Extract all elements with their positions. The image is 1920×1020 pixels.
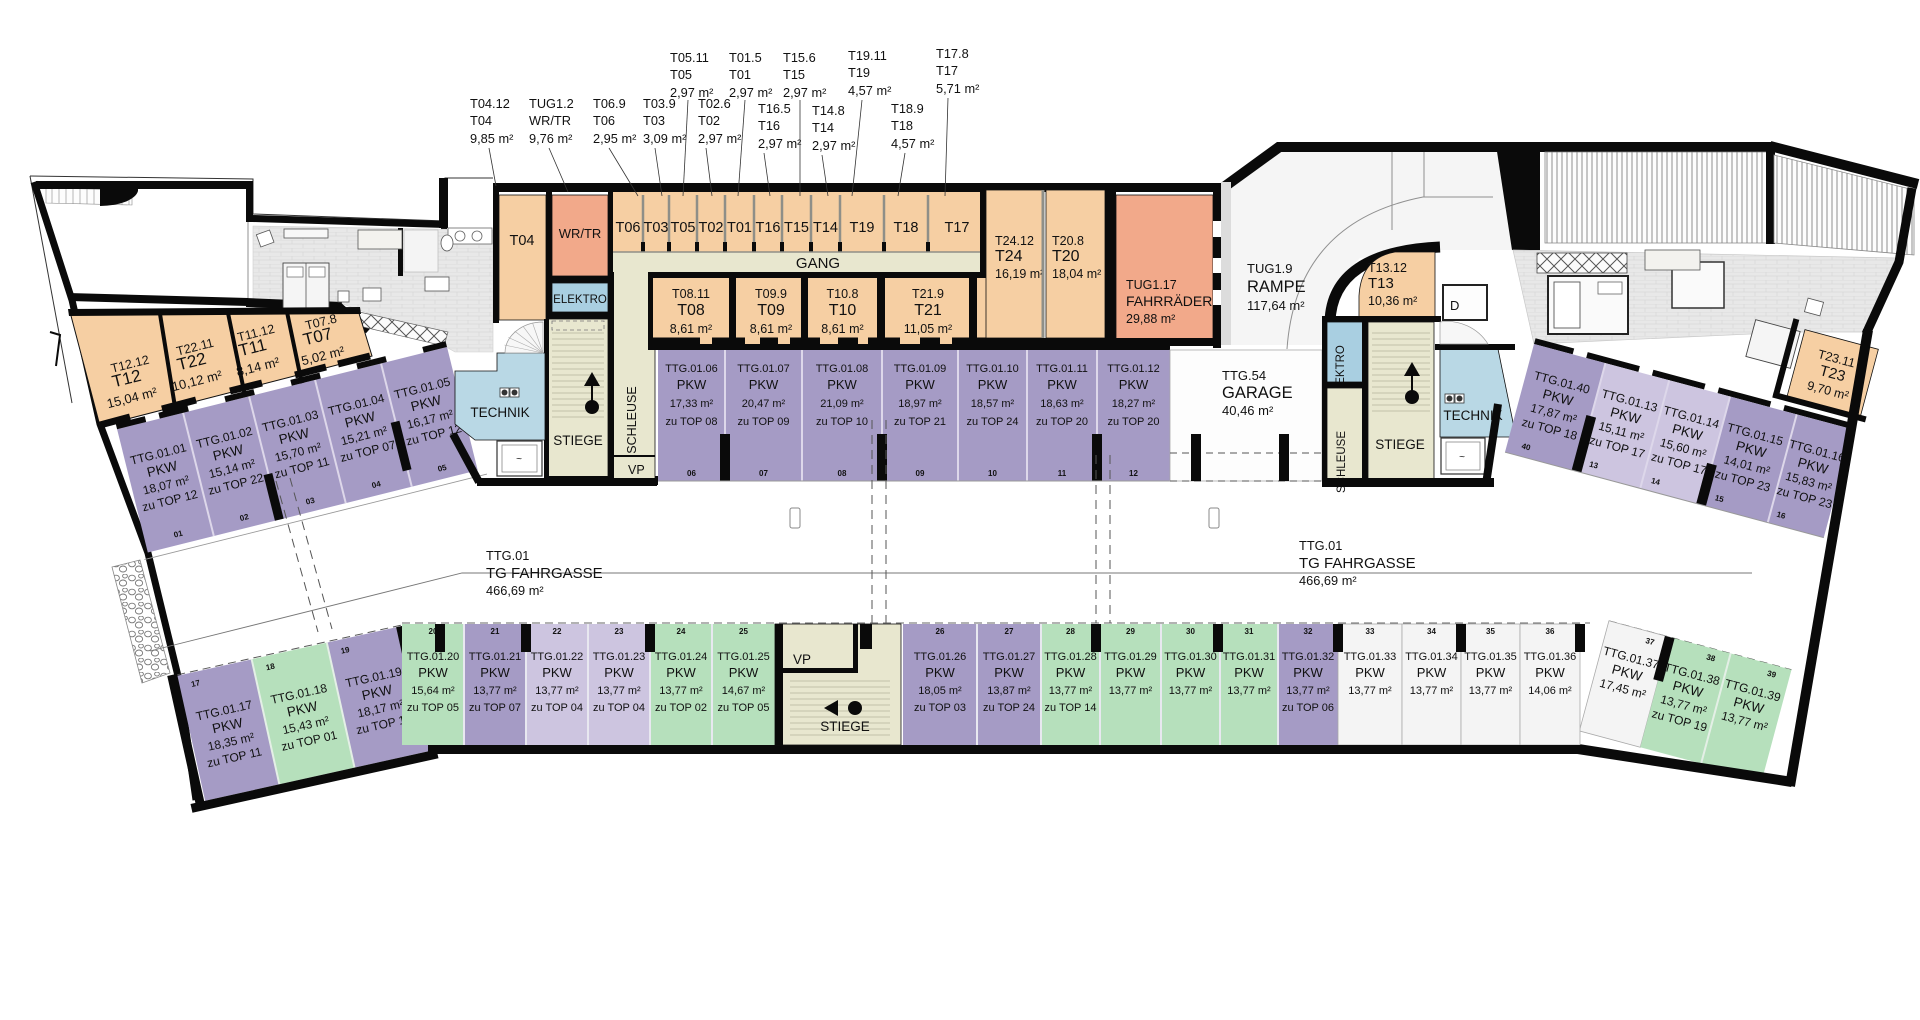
svg-text:TTG.01.25: TTG.01.25: [717, 651, 770, 663]
svg-text:2,97 m²: 2,97 m²: [783, 85, 827, 100]
svg-text:PKW: PKW: [905, 377, 935, 392]
svg-text:~: ~: [1459, 452, 1465, 463]
svg-text:24: 24: [677, 627, 686, 636]
svg-text:18,97 m²: 18,97 m²: [898, 398, 942, 410]
svg-text:TTG.01.28: TTG.01.28: [1044, 651, 1097, 663]
svg-text:PKW: PKW: [827, 377, 857, 392]
svg-text:T24: T24: [995, 248, 1023, 265]
svg-text:T03: T03: [643, 113, 665, 128]
svg-text:zu TOP 20: zu TOP 20: [1108, 416, 1160, 428]
svg-text:STIEGE: STIEGE: [553, 433, 603, 448]
svg-text:~: ~: [516, 454, 522, 465]
svg-text:TTG.01.21: TTG.01.21: [469, 651, 522, 663]
svg-text:25: 25: [739, 627, 748, 636]
svg-text:10: 10: [988, 469, 997, 478]
svg-text:TTG.01.30: TTG.01.30: [1164, 651, 1217, 663]
svg-text:ELEKTRO: ELEKTRO: [553, 294, 607, 306]
svg-text:PKW: PKW: [1234, 665, 1264, 680]
svg-text:T13: T13: [1368, 275, 1394, 292]
svg-text:13,77 m²: 13,77 m²: [1227, 685, 1271, 697]
svg-text:TTG.01: TTG.01: [1299, 538, 1342, 553]
svg-text:PKW: PKW: [729, 665, 759, 680]
svg-text:27: 27: [1005, 627, 1014, 636]
svg-text:T01.5: T01.5: [729, 50, 762, 65]
svg-text:TTG.01.27: TTG.01.27: [983, 651, 1036, 663]
svg-text:T05.11: T05.11: [670, 50, 709, 65]
svg-text:17,33 m²: 17,33 m²: [670, 398, 714, 410]
svg-text:T09: T09: [757, 302, 785, 319]
svg-text:8,61 m²: 8,61 m²: [821, 322, 863, 336]
svg-text:29,88 m²: 29,88 m²: [1126, 312, 1175, 326]
svg-text:13,87 m²: 13,87 m²: [987, 685, 1031, 697]
svg-text:T08.11: T08.11: [672, 287, 710, 301]
svg-text:T04: T04: [510, 233, 535, 249]
svg-text:8,61 m²: 8,61 m²: [670, 322, 712, 336]
svg-text:T15.6: T15.6: [783, 50, 816, 65]
svg-text:4,57 m²: 4,57 m²: [848, 83, 892, 98]
svg-text:zu TOP 24: zu TOP 24: [983, 702, 1035, 714]
svg-text:zu TOP 04: zu TOP 04: [531, 702, 583, 714]
svg-text:12: 12: [1129, 469, 1138, 478]
svg-text:2,97 m²: 2,97 m²: [758, 136, 802, 151]
svg-text:T03: T03: [644, 220, 669, 236]
svg-text:14,06 m²: 14,06 m²: [1528, 685, 1572, 697]
svg-text:9,85 m²: 9,85 m²: [470, 131, 514, 146]
svg-text:29: 29: [1126, 627, 1135, 636]
svg-text:TTG.01.07: TTG.01.07: [737, 363, 790, 375]
svg-text:13,77 m²: 13,77 m²: [659, 685, 703, 697]
svg-text:T15: T15: [784, 220, 809, 236]
svg-text:T19: T19: [848, 65, 870, 80]
svg-text:T21.9: T21.9: [912, 287, 944, 301]
svg-text:2,95 m²: 2,95 m²: [593, 131, 637, 146]
svg-text:T06: T06: [616, 220, 641, 236]
svg-text:TTG.01.33: TTG.01.33: [1344, 651, 1397, 663]
svg-text:VP: VP: [793, 652, 811, 667]
svg-text:13,77 m²: 13,77 m²: [1348, 685, 1392, 697]
svg-text:10,36 m²: 10,36 m²: [1368, 294, 1417, 308]
svg-text:T06: T06: [593, 113, 615, 128]
svg-text:T19: T19: [850, 220, 875, 236]
svg-text:13,77 m²: 13,77 m²: [1410, 685, 1454, 697]
svg-text:3,09 m²: 3,09 m²: [643, 131, 687, 146]
svg-text:T08: T08: [677, 302, 705, 319]
svg-text:T17.8: T17.8: [936, 46, 969, 61]
svg-text:PKW: PKW: [1047, 377, 1077, 392]
svg-text:GANG: GANG: [796, 255, 840, 272]
svg-text:11: 11: [1058, 469, 1067, 478]
svg-text:T01: T01: [729, 67, 751, 82]
svg-text:4,57 m²: 4,57 m²: [891, 136, 935, 151]
svg-text:PKW: PKW: [1119, 377, 1149, 392]
svg-text:22: 22: [553, 627, 562, 636]
svg-text:07: 07: [759, 469, 768, 478]
svg-text:2,97 m²: 2,97 m²: [729, 85, 773, 100]
svg-text:TTG.01.22: TTG.01.22: [531, 651, 584, 663]
svg-text:28: 28: [1066, 627, 1075, 636]
svg-text:STIEGE: STIEGE: [1375, 437, 1425, 452]
svg-text:TTG.01.35: TTG.01.35: [1464, 651, 1517, 663]
svg-text:T10: T10: [829, 302, 857, 319]
svg-text:T04: T04: [470, 113, 492, 128]
svg-text:20,47 m²: 20,47 m²: [742, 398, 786, 410]
svg-text:TTG.01.29: TTG.01.29: [1104, 651, 1157, 663]
svg-text:TUG1.9: TUG1.9: [1247, 261, 1293, 276]
svg-text:PKW: PKW: [994, 665, 1024, 680]
svg-text:35: 35: [1486, 627, 1495, 636]
svg-text:zu TOP 24: zu TOP 24: [967, 416, 1019, 428]
svg-text:T06.9: T06.9: [593, 96, 626, 111]
svg-text:TTG.01.11: TTG.01.11: [1036, 363, 1088, 375]
svg-text:T20: T20: [1052, 248, 1080, 265]
svg-text:TTG.01: TTG.01: [486, 548, 529, 563]
svg-text:PKW: PKW: [749, 377, 779, 392]
svg-text:21,09 m²: 21,09 m²: [820, 398, 864, 410]
svg-text:TTG.01.12: TTG.01.12: [1107, 363, 1160, 375]
svg-text:33: 33: [1366, 627, 1375, 636]
svg-text:TTG.01.06: TTG.01.06: [665, 363, 718, 375]
svg-text:34: 34: [1427, 627, 1436, 636]
svg-text:18,57 m²: 18,57 m²: [971, 398, 1015, 410]
svg-text:PKW: PKW: [677, 377, 707, 392]
svg-text:WR/TR: WR/TR: [529, 113, 571, 128]
svg-text:PKW: PKW: [480, 665, 510, 680]
svg-text:TUG1.2: TUG1.2: [529, 96, 574, 111]
svg-text:T21: T21: [914, 302, 942, 319]
svg-text:13,77 m²: 13,77 m²: [473, 685, 517, 697]
svg-text:18,63 m²: 18,63 m²: [1040, 398, 1084, 410]
svg-text:T16: T16: [758, 118, 780, 133]
svg-text:zu TOP 07: zu TOP 07: [469, 702, 521, 714]
svg-text:SCHLEUSE: SCHLEUSE: [625, 386, 639, 453]
svg-text:PKW: PKW: [978, 377, 1008, 392]
svg-text:09: 09: [916, 469, 925, 478]
svg-text:PKW: PKW: [1417, 665, 1447, 680]
svg-text:PKW: PKW: [1476, 665, 1506, 680]
svg-text:zu TOP 21: zu TOP 21: [894, 416, 946, 428]
svg-text:16,19 m²: 16,19 m²: [995, 267, 1044, 281]
svg-text:TTG.54: TTG.54: [1222, 368, 1266, 383]
svg-text:T17: T17: [936, 63, 958, 78]
svg-text:GARAGE: GARAGE: [1222, 384, 1293, 402]
svg-text:14,67 m²: 14,67 m²: [722, 685, 766, 697]
svg-text:466,69 m²: 466,69 m²: [1299, 573, 1357, 588]
svg-text:TTG.01.26: TTG.01.26: [914, 651, 967, 663]
svg-text:13,77 m²: 13,77 m²: [1109, 685, 1153, 697]
svg-text:PKW: PKW: [1293, 665, 1323, 680]
svg-text:18,27 m²: 18,27 m²: [1112, 398, 1156, 410]
svg-text:PKW: PKW: [418, 665, 448, 680]
svg-text:PKW: PKW: [1056, 665, 1086, 680]
svg-text:2,97 m²: 2,97 m²: [812, 138, 856, 153]
svg-text:T14: T14: [813, 220, 838, 236]
svg-text:15,64 m²: 15,64 m²: [411, 685, 455, 697]
svg-text:26: 26: [936, 627, 945, 636]
svg-text:zu TOP 06: zu TOP 06: [1282, 702, 1334, 714]
svg-text:T05: T05: [671, 220, 696, 236]
svg-text:13,77 m²: 13,77 m²: [535, 685, 579, 697]
svg-text:TECHNIK: TECHNIK: [470, 405, 529, 420]
svg-text:TTG.01.31: TTG.01.31: [1223, 651, 1276, 663]
svg-text:VP: VP: [628, 463, 645, 477]
svg-text:TTG.01.23: TTG.01.23: [593, 651, 646, 663]
svg-text:PKW: PKW: [1355, 665, 1385, 680]
svg-text:T02.6: T02.6: [698, 96, 731, 111]
svg-text:13,77 m²: 13,77 m²: [1469, 685, 1513, 697]
svg-text:23: 23: [615, 627, 624, 636]
svg-text:2,97 m²: 2,97 m²: [698, 131, 742, 146]
svg-text:40,46 m²: 40,46 m²: [1222, 403, 1274, 418]
svg-text:T18.9: T18.9: [891, 101, 924, 116]
svg-text:D: D: [1450, 298, 1459, 313]
svg-text:31: 31: [1245, 627, 1254, 636]
svg-text:PKW: PKW: [1535, 665, 1565, 680]
svg-text:zu TOP 14: zu TOP 14: [1045, 702, 1097, 714]
svg-text:8,61 m²: 8,61 m²: [750, 322, 792, 336]
svg-text:117,64 m²: 117,64 m²: [1247, 298, 1305, 313]
svg-text:32: 32: [1304, 627, 1313, 636]
svg-text:zu TOP 02: zu TOP 02: [655, 702, 707, 714]
svg-text:13,77 m²: 13,77 m²: [1049, 685, 1093, 697]
svg-text:FAHRRÄDER: FAHRRÄDER: [1126, 293, 1212, 309]
svg-text:T09.9: T09.9: [755, 287, 787, 301]
svg-text:5,71 m²: 5,71 m²: [936, 81, 980, 96]
svg-text:T17: T17: [945, 220, 970, 236]
svg-text:06: 06: [687, 469, 696, 478]
svg-text:9,76 m²: 9,76 m²: [529, 131, 573, 146]
svg-text:18,04 m²: 18,04 m²: [1052, 267, 1101, 281]
svg-text:T24.12: T24.12: [995, 234, 1034, 248]
svg-text:13,77 m²: 13,77 m²: [1286, 685, 1330, 697]
svg-text:TTG.01.20: TTG.01.20: [407, 651, 460, 663]
svg-text:STIEGE: STIEGE: [820, 719, 870, 734]
svg-text:13,77 m²: 13,77 m²: [597, 685, 641, 697]
svg-text:21: 21: [491, 627, 500, 636]
svg-text:PKW: PKW: [542, 665, 572, 680]
svg-text:T15: T15: [783, 67, 805, 82]
svg-text:30: 30: [1186, 627, 1195, 636]
svg-text:RAMPE: RAMPE: [1247, 278, 1306, 296]
svg-text:T13.12: T13.12: [1368, 261, 1407, 275]
svg-text:zu TOP 08: zu TOP 08: [666, 416, 718, 428]
svg-text:TUG1.17: TUG1.17: [1126, 278, 1177, 292]
svg-text:zu TOP 05: zu TOP 05: [407, 702, 459, 714]
svg-text:08: 08: [838, 469, 847, 478]
svg-text:TTG.01.32: TTG.01.32: [1282, 651, 1335, 663]
svg-text:11,05 m²: 11,05 m²: [904, 322, 952, 336]
svg-text:PKW: PKW: [604, 665, 634, 680]
svg-text:zu TOP 10: zu TOP 10: [816, 416, 868, 428]
svg-text:zu TOP 09: zu TOP 09: [738, 416, 790, 428]
svg-text:13,77 m²: 13,77 m²: [1169, 685, 1213, 697]
svg-text:T01: T01: [727, 220, 752, 236]
svg-text:TTG.01.34: TTG.01.34: [1405, 651, 1458, 663]
svg-text:zu TOP 20: zu TOP 20: [1036, 416, 1088, 428]
svg-text:T20.8: T20.8: [1052, 234, 1084, 248]
svg-text:TTG.01.10: TTG.01.10: [966, 363, 1019, 375]
svg-text:TTG.01.24: TTG.01.24: [655, 651, 708, 663]
svg-text:T16: T16: [756, 220, 781, 236]
svg-text:T18: T18: [891, 118, 913, 133]
svg-text:T14.8: T14.8: [812, 103, 845, 118]
svg-text:36: 36: [1546, 627, 1555, 636]
svg-text:T10.8: T10.8: [827, 287, 859, 301]
svg-text:PKW: PKW: [666, 665, 696, 680]
svg-text:zu TOP 03: zu TOP 03: [914, 702, 966, 714]
svg-text:PKW: PKW: [1116, 665, 1146, 680]
svg-text:T04.12: T04.12: [470, 96, 510, 111]
svg-text:T19.11: T19.11: [848, 48, 887, 63]
svg-text:TG FAHRGASSE: TG FAHRGASSE: [486, 565, 603, 582]
svg-text:18,05 m²: 18,05 m²: [918, 685, 962, 697]
svg-text:TTG.01.36: TTG.01.36: [1524, 651, 1577, 663]
svg-text:466,69 m²: 466,69 m²: [486, 583, 544, 598]
svg-text:T05: T05: [670, 67, 692, 82]
svg-text:T14: T14: [812, 120, 834, 135]
svg-text:T02: T02: [698, 113, 720, 128]
svg-text:TTG.01.09: TTG.01.09: [894, 363, 947, 375]
svg-text:zu TOP 04: zu TOP 04: [593, 702, 645, 714]
svg-text:zu TOP 05: zu TOP 05: [718, 702, 770, 714]
svg-text:T16.5: T16.5: [758, 101, 791, 116]
svg-text:WR/TR: WR/TR: [559, 226, 602, 241]
svg-text:T02: T02: [699, 220, 724, 236]
svg-text:T18: T18: [894, 220, 919, 236]
svg-text:TTG.01.08: TTG.01.08: [816, 363, 869, 375]
svg-text:TG FAHRGASSE: TG FAHRGASSE: [1299, 555, 1416, 572]
svg-text:PKW: PKW: [925, 665, 955, 680]
svg-text:PKW: PKW: [1176, 665, 1206, 680]
